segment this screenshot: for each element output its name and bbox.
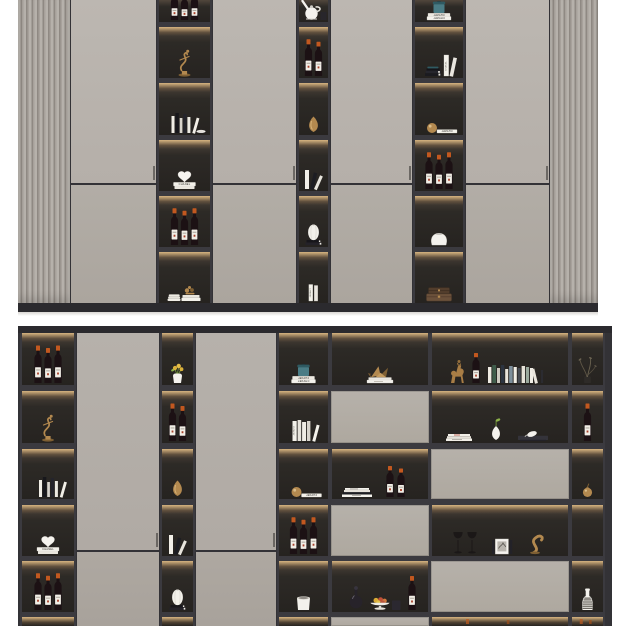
- open-shelf-column: CHANEL: [297, 0, 330, 303]
- shelf-cell: CHANEL: [22, 505, 74, 556]
- svg-text:CHANEL: CHANEL: [433, 16, 445, 20]
- shelf-cell: [572, 449, 603, 499]
- shelf-cell: [299, 83, 328, 135]
- door-lower-panel: [331, 185, 412, 303]
- svg-text:CHANEL: CHANEL: [297, 379, 309, 383]
- drawer-panel: [331, 505, 429, 556]
- shelf-cell: CHANELCHANEL: [415, 0, 463, 22]
- shelf-cell: [299, 0, 328, 22]
- shelf-cell: [162, 391, 193, 443]
- shelf-cell: [572, 561, 603, 612]
- cabinet-door: [76, 333, 160, 626]
- door-upper-panel: [331, 0, 412, 183]
- door-handle: [156, 533, 158, 547]
- door-handle: [153, 166, 155, 180]
- shelf-cell: [299, 27, 328, 78]
- shelf-cell: [415, 252, 463, 303]
- cabinet-shadow: [18, 312, 598, 316]
- shelf-cell: [162, 561, 193, 612]
- shelf-cell: CHANEL: [415, 83, 463, 135]
- shelf-cell: [299, 140, 328, 191]
- drawer-panel: [331, 391, 429, 443]
- door-lower-panel: [71, 185, 156, 303]
- door-upper-panel: [466, 0, 549, 183]
- open-shelf-column: CHANEL: [20, 326, 76, 626]
- shelf-cell: [432, 391, 568, 443]
- svg-text:CHANEL: CHANEL: [444, 60, 447, 71]
- cabinet-door: [330, 0, 413, 303]
- fluted-side-panel: [18, 0, 70, 303]
- shelf-cell: [22, 391, 74, 443]
- cabinet-door: [212, 0, 297, 303]
- door-lower-panel: [196, 552, 276, 626]
- shelf-cell: [572, 391, 603, 443]
- shelf-cell: [162, 617, 193, 626]
- shelf-cell: [572, 333, 603, 385]
- svg-text:CHANEL: CHANEL: [293, 426, 296, 437]
- shelf-cell: CHANEL: [299, 252, 328, 303]
- shelf-cell: [159, 196, 210, 247]
- wall-cabinet-top: CHANELCHANELCHANELCHANELCHANELCHANEL: [18, 0, 598, 312]
- shelf-cell: [159, 83, 210, 135]
- shelf-cell: [162, 449, 193, 499]
- cabinet-frame-strip: [18, 326, 612, 333]
- shelf-cell: [22, 617, 74, 626]
- svg-text:CHANEL: CHANEL: [309, 288, 312, 298]
- shelf-cell: [159, 0, 210, 22]
- svg-text:CHANEL: CHANEL: [42, 547, 54, 551]
- shelf-cell: [162, 333, 193, 385]
- shelf-cell: [432, 333, 568, 385]
- shelf-cell: CHANEL: [279, 391, 328, 443]
- svg-text:CHANEL: CHANEL: [179, 182, 191, 186]
- door-handle: [293, 166, 295, 180]
- shelf-cell: CHANELCHANEL: [279, 333, 328, 385]
- furniture-product-render: CHANELCHANELCHANELCHANELCHANELCHANEL CHA…: [0, 0, 626, 626]
- shelf-cell: CHANEL: [415, 27, 463, 78]
- shelf-cell: [22, 561, 74, 612]
- open-shelf-column: CHANELCHANELCHANELCHANEL: [413, 0, 465, 303]
- door-lower-panel: [213, 185, 296, 303]
- shelf-cell: [332, 561, 428, 612]
- shelf-cell: [332, 333, 428, 385]
- door-lower-panel: [466, 185, 549, 303]
- cabinet-door: [70, 0, 157, 303]
- fluted-side-panel: [550, 0, 598, 303]
- open-shelf-column: [570, 326, 605, 626]
- open-shelf-column: [160, 326, 195, 626]
- shelf-cell: [22, 449, 74, 499]
- open-shelf-column: CHANEL: [157, 0, 212, 303]
- shelf-cell: [572, 505, 603, 556]
- door-upper-panel: [71, 0, 156, 183]
- shelf-cell: [415, 196, 463, 247]
- shelf-cell: [162, 505, 193, 556]
- drawer-panel: [431, 561, 569, 612]
- open-shelf-column: [330, 326, 430, 626]
- cabinet-frame-strip: [18, 303, 598, 312]
- shelf-cell: [415, 140, 463, 191]
- cabinet-door: [465, 0, 550, 303]
- door-upper-panel: [77, 333, 159, 550]
- shelf-cell: CHANEL: [159, 140, 210, 191]
- shelf-cell: [572, 617, 603, 626]
- door-handle: [273, 533, 275, 547]
- door-handle: [409, 166, 411, 180]
- door-upper-panel: [196, 333, 276, 550]
- wall-cabinet-bottom: CHANELCHANELCHANELCHANELCHANEL: [18, 326, 612, 626]
- svg-text:CHANEL: CHANEL: [305, 494, 317, 497]
- shelf-cell: [159, 27, 210, 78]
- shelf-cell: [22, 333, 74, 385]
- door-upper-panel: [213, 0, 296, 183]
- open-shelf-column: CHANELCHANELCHANELCHANEL: [277, 326, 330, 626]
- svg-text:CHANEL: CHANEL: [441, 130, 453, 133]
- cabinet-door: [195, 333, 277, 626]
- shelf-cell: [432, 617, 568, 626]
- drawer-panel: [331, 617, 429, 626]
- open-shelf-column: [430, 326, 570, 626]
- door-lower-panel: [77, 552, 159, 626]
- shelf-cell: [332, 449, 428, 499]
- shelf-cell: [432, 505, 568, 556]
- door-handle: [546, 166, 548, 180]
- shelf-cell: [279, 561, 328, 612]
- shelf-cell: [279, 617, 328, 626]
- shelf-cell: [279, 505, 328, 556]
- shelf-cell: [159, 252, 210, 303]
- shelf-cell: [299, 196, 328, 247]
- shelf-cell: CHANEL: [279, 449, 328, 499]
- drawer-panel: [431, 449, 569, 499]
